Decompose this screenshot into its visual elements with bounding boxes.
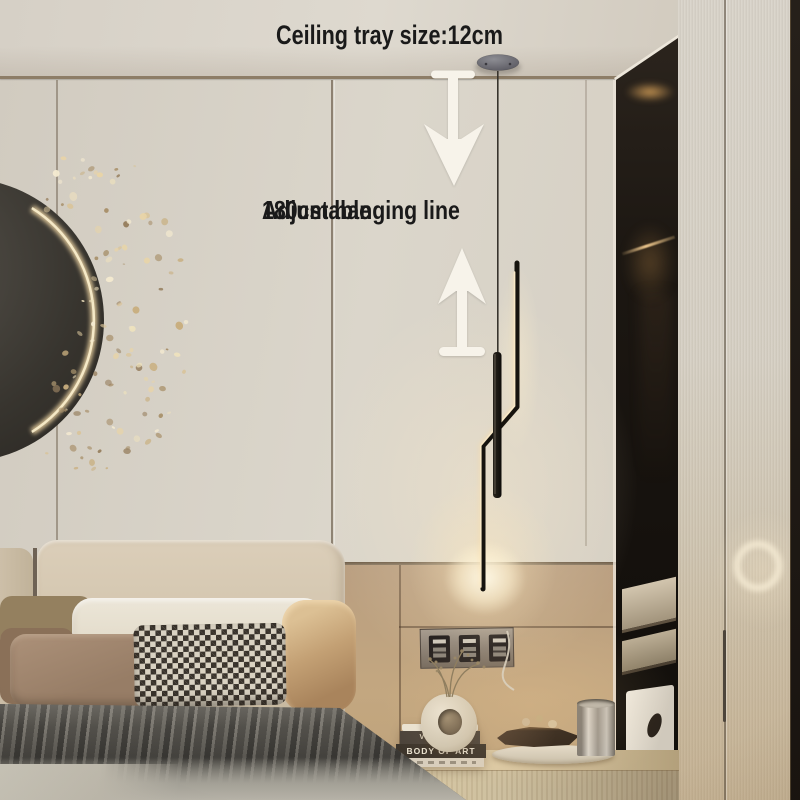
metal-cup [577,703,615,756]
closet-garment-highlight [640,293,672,483]
wardrobe-recess [616,38,678,765]
metal-cup-rim [577,699,615,708]
closet-drawer-upper [622,577,676,633]
wall-seam-right [585,80,587,546]
wall-seam-center [331,80,333,546]
wall-top-trim [0,76,618,79]
pillow-taupe [10,634,152,706]
seed-pod-1 [522,718,530,726]
seed-pod-2 [536,715,543,722]
adjustable-text: Adjustable [262,194,371,226]
donut-vase [421,694,477,752]
door-ring-light [734,541,782,591]
switch-module-3 [489,634,510,661]
product-photo-bedroom-pendant-lamp: VENICE BODY OF ART [0,0,800,800]
pillow-satin-tan [282,600,356,712]
door-seam-highlight [726,0,727,800]
pillow-houndstooth [133,623,286,708]
tissue-box-hole [645,712,665,738]
ceiling-tray-label: Ceiling tray size:12cm [276,20,503,51]
mirror-and-wall-art [0,150,300,480]
vase-hole [438,709,462,735]
closet-drawer-lower [622,629,676,675]
bed-sheet [0,764,178,800]
wall-switch-panel [420,627,515,669]
ceiling-shadow [0,46,678,80]
door-handle-groove [723,630,726,722]
seed-pod-3 [548,720,557,728]
right-edge-strip [790,0,800,800]
switch-module-2 [459,635,480,662]
wardrobe-doors [678,0,790,800]
closet-top-light [625,82,675,102]
closet-rail-glow [624,223,676,303]
wardrobe-corner-edge [613,80,616,752]
right-edge-highlight [790,0,791,800]
wall-seam-center-highlight [334,80,335,546]
switch-module-1 [429,635,450,662]
